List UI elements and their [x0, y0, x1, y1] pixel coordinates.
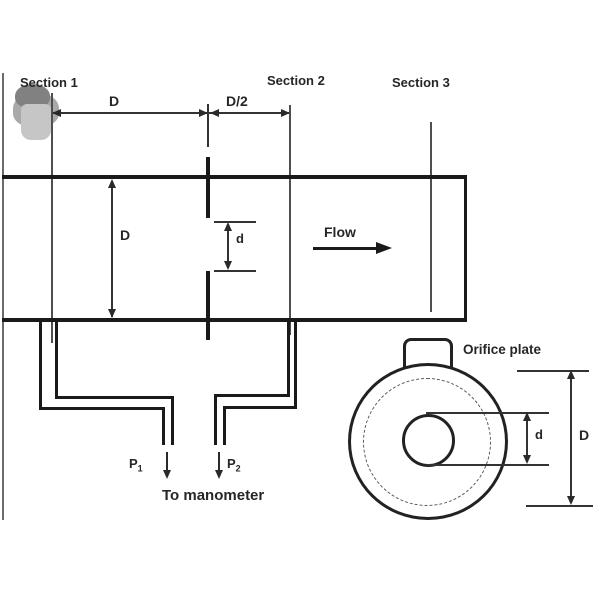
front-d-arrowhead-bottom-icon [523, 455, 531, 464]
smudge-light-blob [21, 104, 51, 140]
tap1-top-horizontal [55, 396, 174, 399]
dim2-arrowhead-left-icon [210, 109, 219, 117]
section-1-label: Section 1 [20, 75, 78, 90]
p2-label: P2 [227, 456, 241, 474]
flow-arrow-line [313, 247, 378, 250]
section-3-label: Section 3 [392, 75, 450, 90]
downstream-spacing-label: D/2 [226, 93, 248, 109]
p1-arrowhead-icon [163, 470, 171, 479]
dim-line-downstream [209, 112, 289, 114]
dim-line-upstream [53, 112, 208, 114]
front-D-line-top [517, 370, 589, 372]
front-D-line-bottom [526, 505, 593, 507]
p1-subscript: 1 [138, 464, 143, 474]
pipe-diameter-arrow-line [111, 181, 113, 317]
orifice-d-tick-bottom [214, 270, 256, 272]
pipe-top-wall [2, 175, 467, 179]
tap2-bottom-horizontal [223, 406, 297, 409]
orifice-meter-diagram: Section 1 Section 2 Section 3 D D/2 D d … [0, 0, 600, 600]
tap1-bottom-horizontal [39, 407, 165, 410]
dim-arrowhead-right-icon [199, 109, 208, 117]
pipe-bottom-wall [2, 318, 467, 322]
p2-subscript: 2 [236, 464, 241, 474]
p2-arrow-line [218, 452, 220, 472]
to-manometer-label: To manometer [162, 487, 264, 504]
tap2-drop-left [214, 394, 217, 445]
pipe-diameter-arrowhead-bottom-icon [108, 309, 116, 318]
orifice-d-arrowhead-bottom-icon [224, 261, 232, 270]
pipe-diameter-label: D [120, 227, 130, 243]
p1-base: P [129, 456, 138, 471]
upstream-spacing-label: D [109, 93, 119, 109]
orifice-plate-lower [206, 271, 210, 340]
p2-arrowhead-icon [215, 470, 223, 479]
dim-arrowhead-left-icon [52, 109, 61, 117]
section-2-line [289, 105, 291, 335]
orifice-plate-label: Orifice plate [463, 342, 541, 357]
orifice-d-tick-top [214, 221, 256, 223]
pipe-diameter-arrowhead-top-icon [108, 179, 116, 188]
front-D-arrowhead-bottom-icon [567, 496, 575, 505]
orifice-front-tab [403, 338, 453, 368]
tap2-drop-right [223, 406, 226, 445]
orifice-plate-upper [206, 157, 210, 218]
tap2-top-horizontal [214, 394, 290, 397]
tap2-inner-vertical [287, 322, 290, 396]
flow-label: Flow [324, 224, 356, 240]
tap1-outer-vertical [39, 322, 42, 410]
front-d-line-bottom [426, 464, 549, 466]
front-d-arrowhead-top-icon [523, 412, 531, 421]
figure-left-border-line [2, 73, 4, 520]
p2-base: P [227, 456, 236, 471]
front-D-arrowhead-top-icon [567, 370, 575, 379]
tap1-drop-left [162, 407, 165, 445]
front-orifice-diameter-label: d [535, 427, 543, 442]
flow-arrowhead-icon [376, 242, 392, 254]
p1-label: P1 [129, 456, 143, 474]
section-1-line [51, 93, 53, 343]
front-D-arrow-line [570, 373, 572, 503]
tap1-drop-right [171, 396, 174, 445]
section-3-line [430, 122, 432, 312]
pipe-right-end [464, 175, 467, 322]
dim2-arrowhead-right-icon [281, 109, 290, 117]
front-pipe-diameter-label: D [579, 427, 589, 443]
tap1-inner-vertical [55, 322, 58, 398]
orifice-d-arrowhead-top-icon [224, 222, 232, 231]
tap2-outer-vertical [294, 322, 297, 409]
orifice-front-bore-circle [402, 414, 455, 467]
p1-arrow-line [166, 452, 168, 472]
section-2-label: Section 2 [267, 73, 325, 88]
orifice-diameter-label: d [236, 231, 244, 246]
